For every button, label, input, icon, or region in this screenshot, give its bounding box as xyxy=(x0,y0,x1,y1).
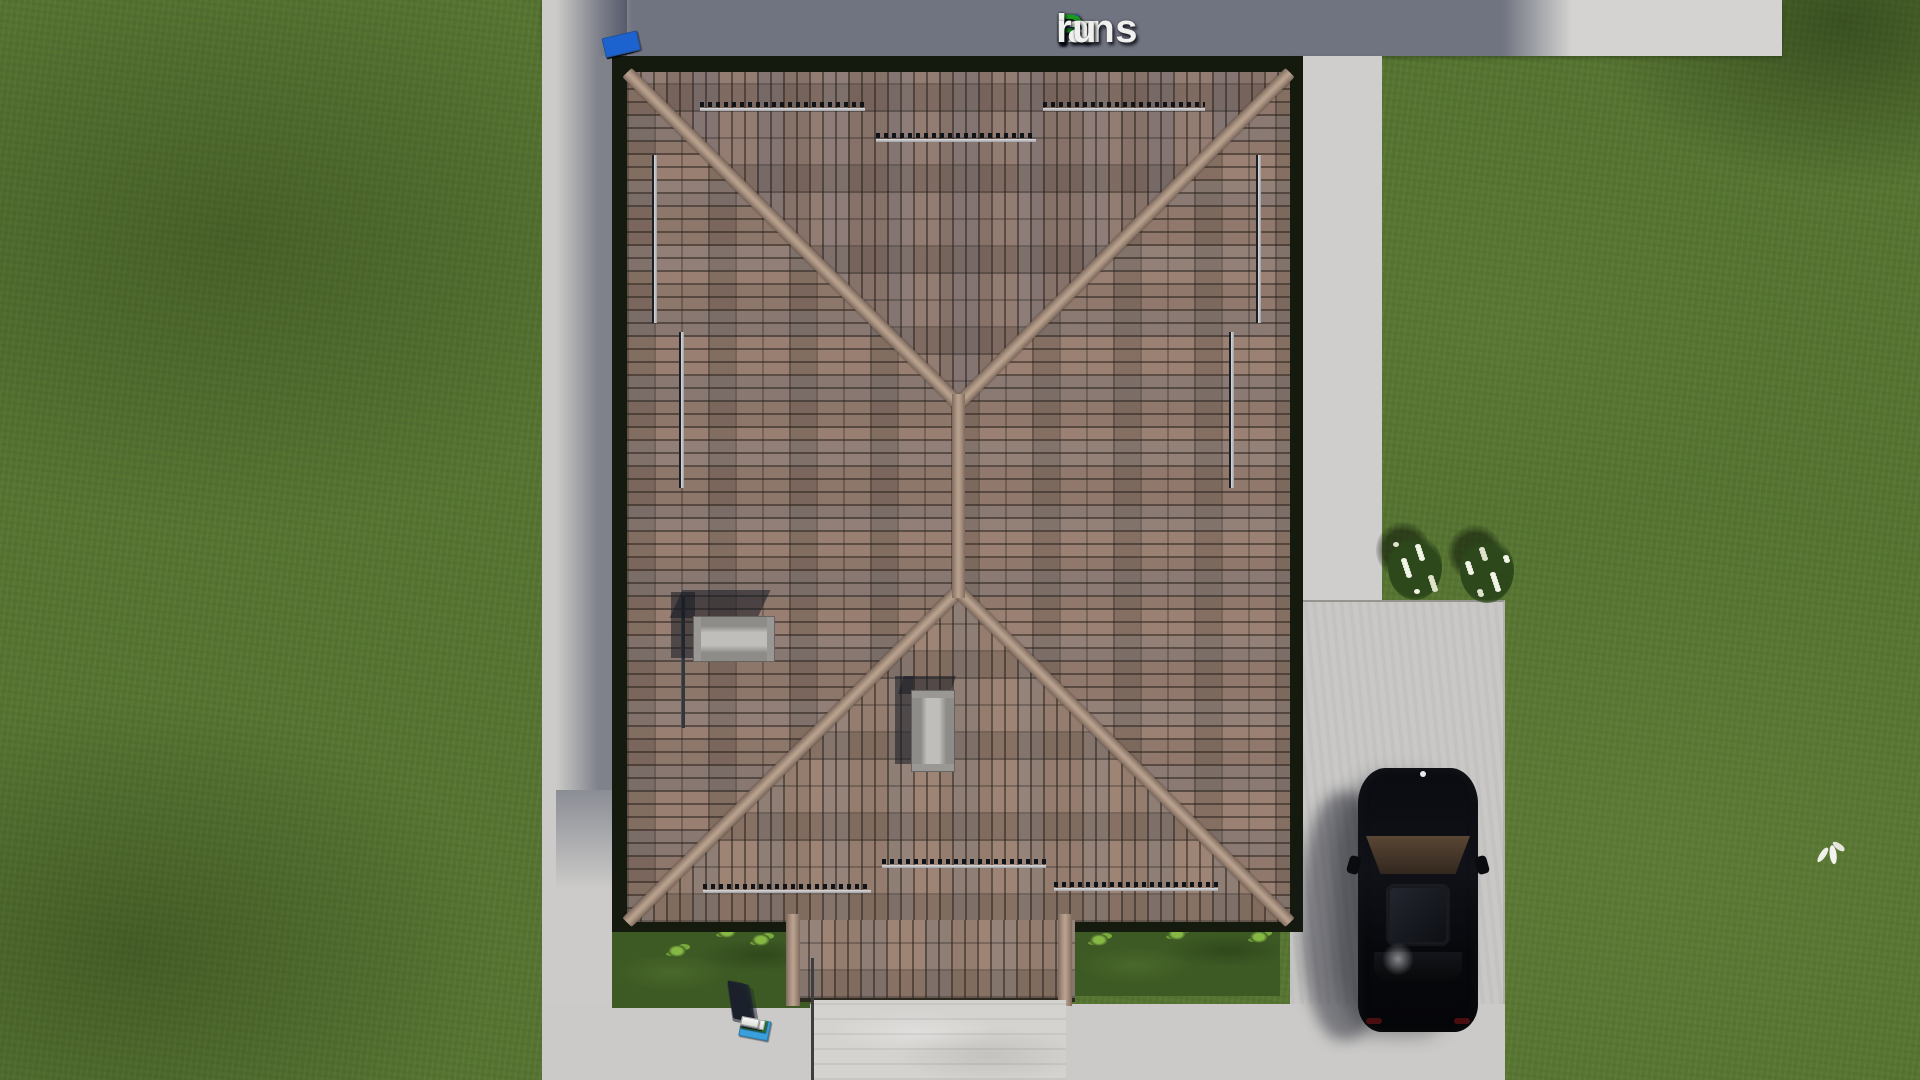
snow-guard xyxy=(1256,155,1261,323)
snow-guard xyxy=(679,332,684,488)
snow-guard xyxy=(703,884,871,893)
bird-wing xyxy=(1815,846,1830,863)
chimney-shadow xyxy=(671,592,695,658)
flower xyxy=(1428,575,1434,580)
car-taillight xyxy=(1366,1018,1382,1024)
flower-bush xyxy=(1388,534,1442,600)
snow-guard xyxy=(876,133,1036,142)
car-taillight xyxy=(1454,1018,1470,1024)
south-lawn-strip-left xyxy=(612,920,810,1008)
parked-car xyxy=(1300,760,1500,1045)
chimney xyxy=(911,690,955,772)
flower xyxy=(1479,547,1485,552)
flower xyxy=(1415,544,1421,549)
flower xyxy=(1503,555,1509,560)
main-ridge xyxy=(952,394,965,598)
car-reflection xyxy=(1380,940,1416,978)
shrub-tuft xyxy=(668,945,686,957)
flower xyxy=(1401,558,1407,563)
snow-guard xyxy=(1229,332,1234,488)
logo-letter: ru xyxy=(1056,6,1097,52)
flower xyxy=(1477,589,1483,594)
hip-roof xyxy=(627,72,1290,922)
car-windshield xyxy=(1366,836,1470,874)
snow-guard xyxy=(1043,102,1205,111)
car-sunroof xyxy=(1388,886,1448,944)
east-walkway xyxy=(1290,54,1382,602)
snow-guard xyxy=(1054,882,1218,891)
porch-ridge-left xyxy=(786,914,800,1006)
chimney xyxy=(693,616,775,662)
flower xyxy=(1414,589,1420,594)
car-body xyxy=(1358,768,1478,1032)
aerial-house-render: FixPlans.ru xyxy=(0,0,1920,1080)
flower xyxy=(1490,572,1496,577)
snow-guard xyxy=(652,155,657,323)
car-antenna xyxy=(1420,771,1426,777)
car-mirror-right xyxy=(1474,855,1490,876)
shrub-tuft xyxy=(1090,934,1108,946)
flower-bush xyxy=(1460,537,1514,603)
shrub-tuft xyxy=(1250,931,1268,943)
snow-guard xyxy=(700,102,865,111)
porch-ridge-right xyxy=(1058,914,1072,1006)
shrub-tuft xyxy=(752,934,770,946)
flower xyxy=(1465,561,1471,566)
flower xyxy=(1393,542,1399,547)
snow-guard xyxy=(882,859,1046,868)
porch-roof xyxy=(795,920,1075,1002)
